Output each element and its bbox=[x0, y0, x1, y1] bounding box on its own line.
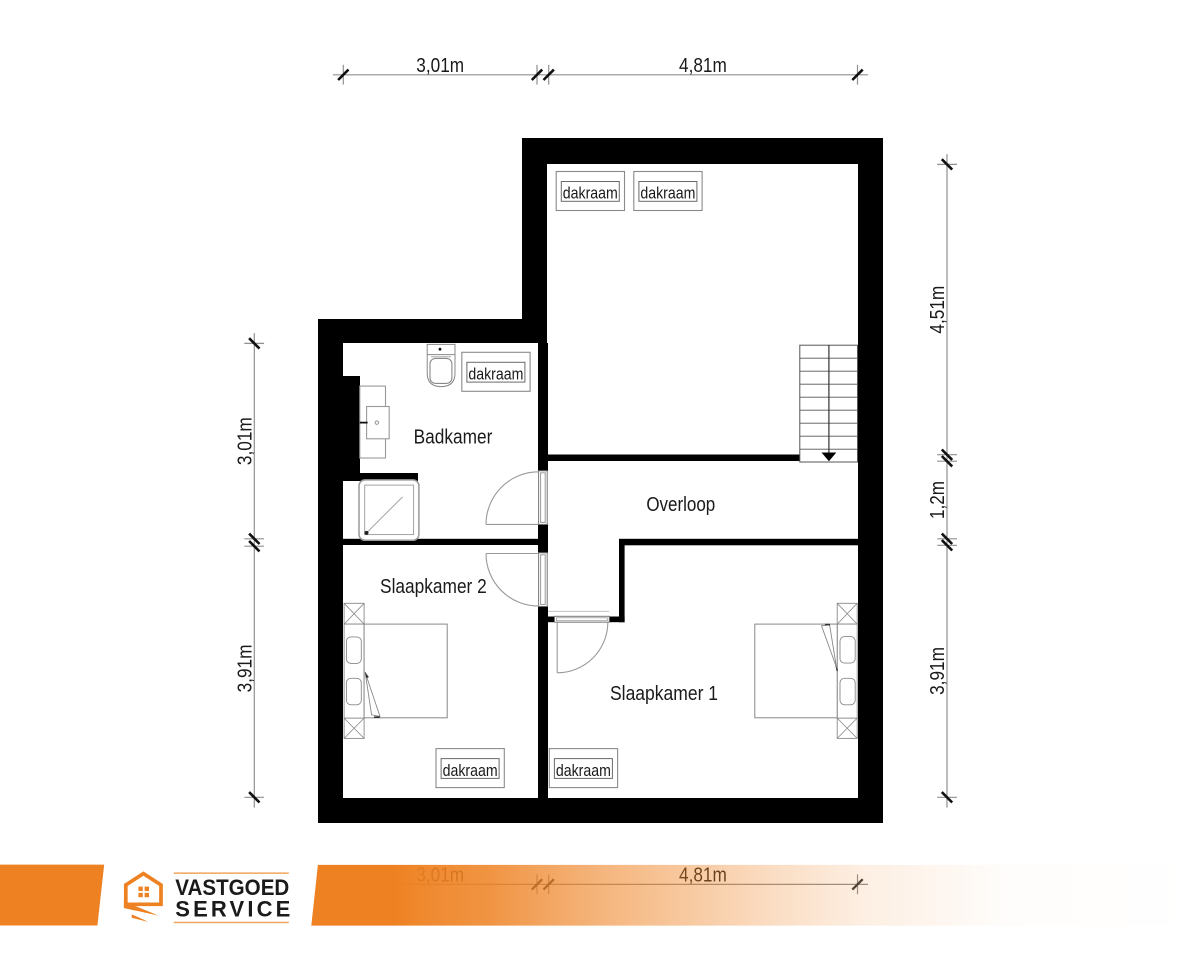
svg-text:Overloop: Overloop bbox=[646, 494, 715, 516]
svg-text:3,91m: 3,91m bbox=[927, 647, 949, 695]
svg-text:dakraam: dakraam bbox=[443, 761, 498, 780]
svg-text:4,81m: 4,81m bbox=[679, 55, 727, 77]
svg-text:3,01m: 3,01m bbox=[235, 417, 257, 465]
svg-text:Slaapkamer 1: Slaapkamer 1 bbox=[610, 683, 718, 705]
svg-text:3,91m: 3,91m bbox=[235, 645, 257, 693]
svg-text:Slaapkamer 2: Slaapkamer 2 bbox=[380, 576, 487, 598]
svg-text:dakraam: dakraam bbox=[563, 184, 618, 203]
svg-text:dakraam: dakraam bbox=[640, 184, 695, 203]
svg-text:dakraam: dakraam bbox=[468, 365, 523, 384]
svg-text:Badkamer: Badkamer bbox=[414, 426, 493, 448]
svg-text:4,51m: 4,51m bbox=[927, 286, 949, 334]
svg-text:3,01m: 3,01m bbox=[416, 55, 464, 77]
svg-text:dakraam: dakraam bbox=[556, 761, 611, 780]
svg-text:1,2m: 1,2m bbox=[927, 481, 949, 519]
